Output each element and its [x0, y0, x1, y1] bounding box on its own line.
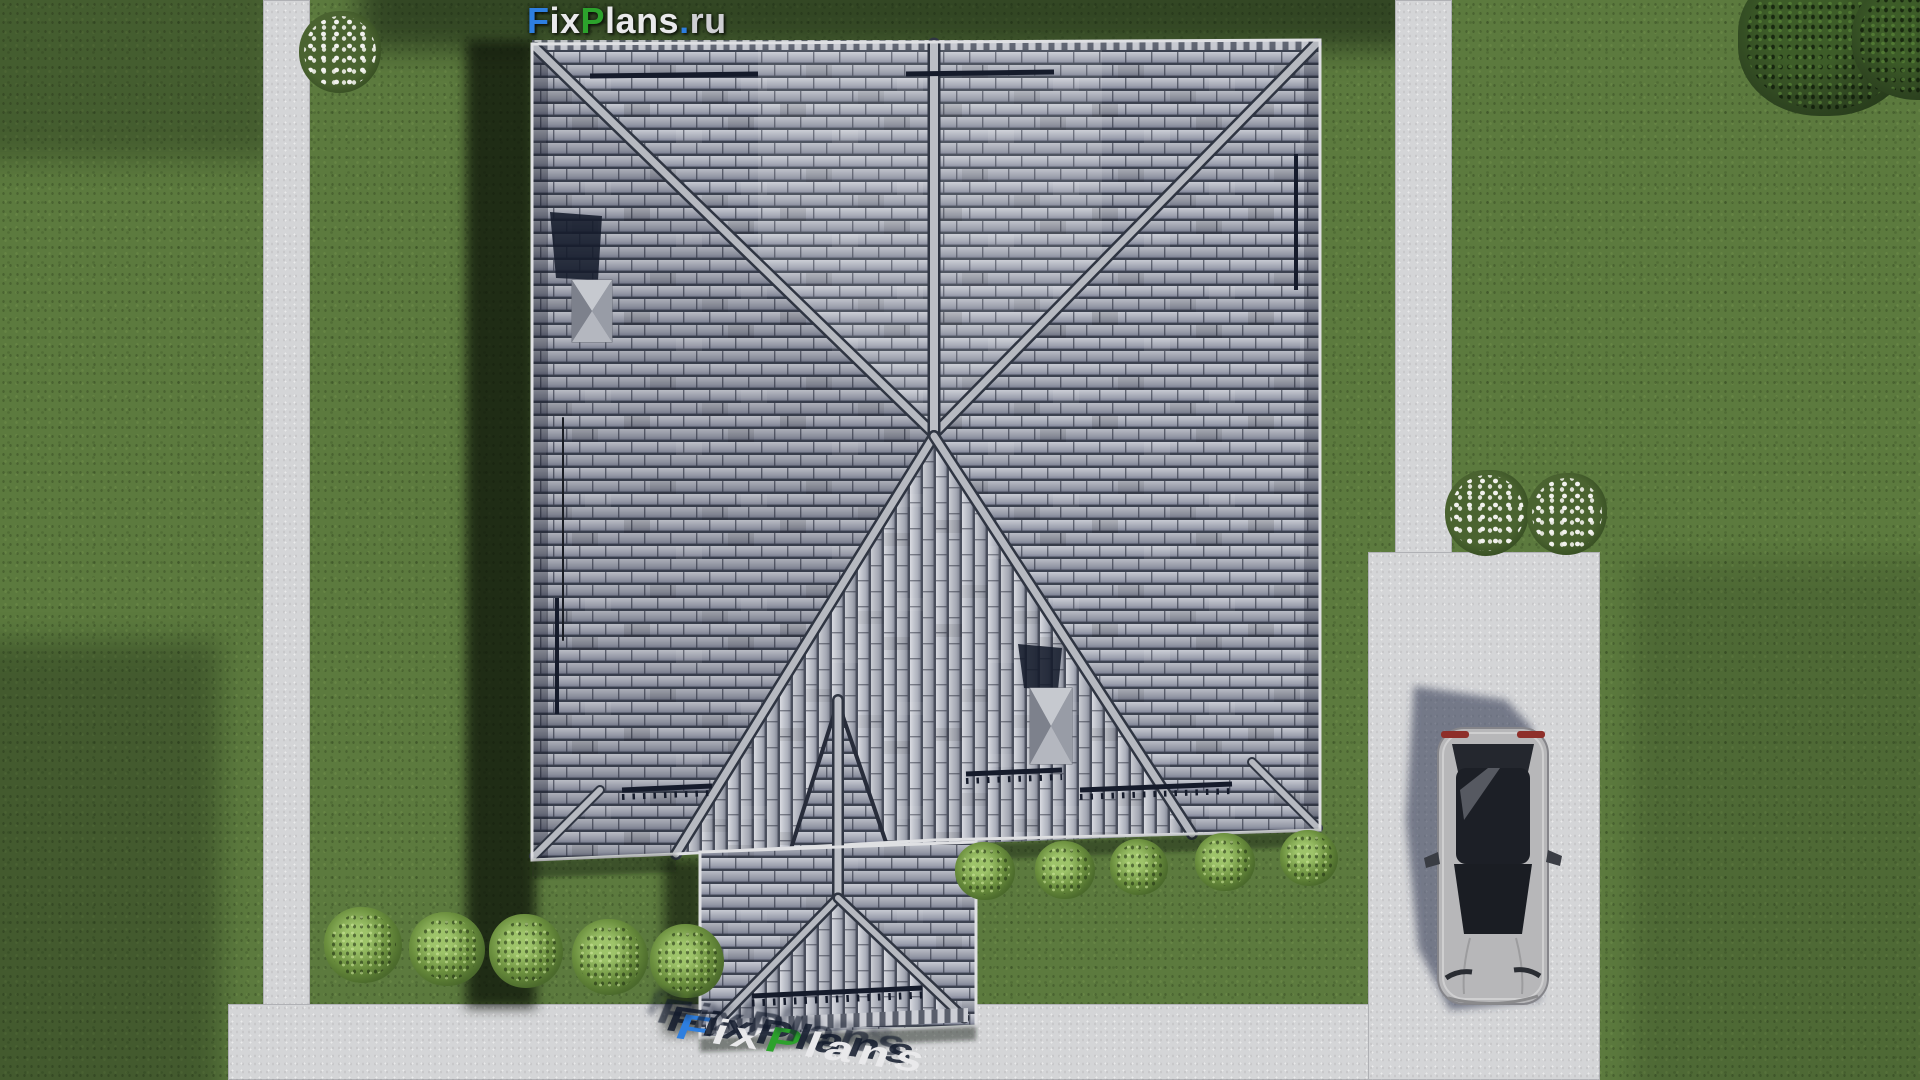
car-windshield — [1454, 864, 1532, 934]
bush — [409, 912, 485, 986]
logo-segment: lans — [605, 0, 679, 41]
logo-segment: ru — [690, 0, 727, 41]
car-taillight-right — [1517, 731, 1545, 738]
roof-right-edge-shade — [1304, 40, 1320, 832]
bush — [572, 919, 648, 995]
bush — [1195, 833, 1255, 891]
car-rear-glass — [1452, 744, 1534, 772]
aerial-house-render: FixPlans.ru FixPlans — [0, 0, 1920, 1080]
bush — [1280, 830, 1338, 886]
car — [1406, 686, 1562, 1010]
chimney-1-shadow — [550, 212, 602, 280]
bush — [324, 907, 402, 983]
bush — [1035, 841, 1095, 899]
bush — [1110, 839, 1168, 895]
logo-segment: P — [581, 0, 606, 41]
site-logo-watermark: FixPlans.ru — [527, 0, 727, 42]
roof-and-car-drawing — [0, 0, 1920, 1080]
car-taillight-left — [1441, 731, 1469, 738]
logo-segment: F — [527, 0, 550, 41]
flower-bush-right-2 — [1527, 473, 1607, 555]
bush — [489, 914, 563, 988]
main-hip-roof — [532, 40, 1320, 860]
bush — [955, 842, 1015, 900]
logo-segment: . — [679, 0, 690, 41]
logo-segment: ix — [550, 0, 581, 41]
flower-bush-right-1 — [1445, 470, 1529, 556]
bush — [650, 924, 724, 998]
flower-bush-top-left — [299, 11, 381, 93]
snow-guard-top-right — [906, 72, 1054, 74]
roof-left-edge-shade — [532, 44, 548, 860]
car-roof-glass — [1456, 768, 1530, 864]
snow-guard-top-left — [590, 74, 758, 76]
chimney-2-shadow — [1018, 644, 1062, 690]
